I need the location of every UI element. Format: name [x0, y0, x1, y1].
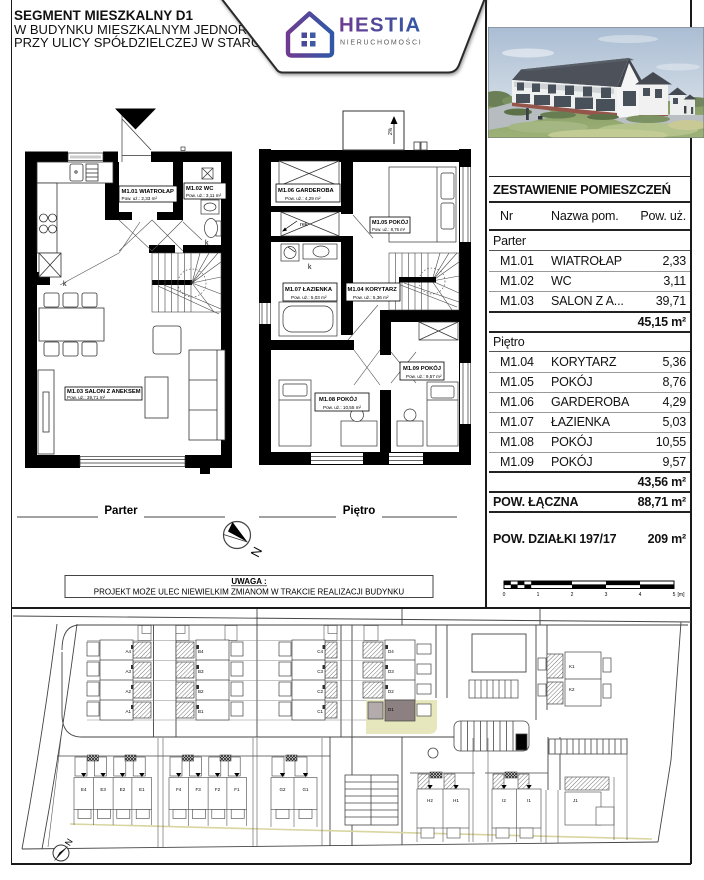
svg-text:Pow. uż.: 9,57 m²: Pow. uż.: 9,57 m²	[406, 374, 442, 379]
svg-text:D1: D1	[388, 707, 394, 712]
svg-text:E3: E3	[100, 787, 106, 792]
svg-text:B2: B2	[198, 689, 204, 694]
svg-text:1: 1	[537, 592, 540, 598]
svg-text:K1: K1	[569, 664, 575, 669]
svg-text:M1.05 POKÓJ: M1.05 POKÓJ	[372, 218, 408, 226]
svg-text:5: 5	[673, 592, 676, 598]
svg-text:C4: C4	[317, 649, 323, 654]
svg-text:Pow. uż.: 39,71 m²: Pow. uż.: 39,71 m²	[67, 395, 106, 400]
svg-text:A4: A4	[125, 649, 131, 654]
svg-text:Pow. uż.: 8,76 m²: Pow. uż.: 8,76 m²	[372, 227, 406, 232]
svg-text:k: k	[205, 240, 209, 247]
svg-text:Pow. uż.: 4,29 m²: Pow. uż.: 4,29 m²	[285, 196, 321, 201]
svg-text:Pow. uż.: 5,36 m²: Pow. uż.: 5,36 m²	[353, 295, 389, 300]
svg-text:A1: A1	[125, 709, 131, 714]
svg-text:A3: A3	[125, 669, 131, 674]
svg-text:B3: B3	[198, 669, 204, 674]
svg-text:E1: E1	[139, 787, 145, 792]
svg-text:F4: F4	[176, 787, 182, 792]
svg-text:F1: F1	[234, 787, 240, 792]
svg-text:[m]: [m]	[678, 592, 686, 598]
svg-text:G1: G1	[302, 787, 309, 792]
svg-text:C2: C2	[317, 689, 323, 694]
svg-text:M1.07 ŁAZIENKA: M1.07 ŁAZIENKA	[285, 287, 333, 293]
svg-text:0: 0	[503, 592, 506, 598]
svg-text:G2: G2	[279, 787, 286, 792]
svg-text:Pow. uż.: 5,03 m²: Pow. uż.: 5,03 m²	[291, 295, 327, 300]
svg-text:M1.01 WIATROŁAP: M1.01 WIATROŁAP	[122, 189, 175, 195]
svg-text:k: k	[308, 264, 312, 271]
svg-text:K2: K2	[569, 687, 575, 692]
svg-text:2: 2	[571, 592, 574, 598]
svg-text:I1: I1	[527, 798, 531, 803]
svg-text:F2: F2	[215, 787, 221, 792]
svg-text:A2: A2	[125, 689, 131, 694]
svg-text:D4: D4	[388, 649, 394, 654]
svg-text:rek: rek	[300, 222, 308, 228]
svg-text:2%: 2%	[388, 127, 394, 135]
svg-text:Pow. uż.: 2,33 m²: Pow. uż.: 2,33 m²	[122, 196, 158, 201]
svg-text:H1: H1	[453, 798, 459, 803]
svg-text:UWAGA :: UWAGA :	[231, 577, 266, 586]
svg-text:M1.04 KORYTARZ: M1.04 KORYTARZ	[348, 287, 398, 293]
svg-text:NIERUCHOMOŚCI: NIERUCHOMOŚCI	[340, 38, 422, 47]
svg-text:J1: J1	[573, 798, 578, 803]
svg-text:D3: D3	[388, 669, 394, 674]
svg-text:4: 4	[639, 592, 642, 598]
svg-text:Piętro: Piętro	[343, 505, 376, 517]
svg-text:N: N	[248, 544, 266, 559]
svg-text:M1.08 POKÓJ: M1.08 POKÓJ	[319, 395, 357, 403]
svg-text:HESTIA: HESTIA	[339, 14, 421, 37]
svg-text:M1.02 WC: M1.02 WC	[186, 186, 214, 192]
svg-text:M1.09 POKÓJ: M1.09 POKÓJ	[403, 364, 441, 372]
svg-text:H2: H2	[427, 798, 433, 803]
svg-text:D2: D2	[388, 689, 394, 694]
svg-text:C3: C3	[317, 669, 323, 674]
svg-text:I2: I2	[502, 798, 506, 803]
svg-text:3: 3	[605, 592, 608, 598]
svg-text:C1: C1	[317, 709, 323, 714]
svg-text:E2: E2	[120, 787, 126, 792]
svg-text:E4: E4	[81, 787, 87, 792]
svg-text:Pow. uż.: 10,55 m²: Pow. uż.: 10,55 m²	[323, 405, 362, 410]
svg-text:Pow. uż.: 3,11 m²: Pow. uż.: 3,11 m²	[186, 193, 222, 198]
svg-text:F3: F3	[195, 787, 201, 792]
svg-text:PROJEKT MOŻE ULEC NIEWIELKIM Z: PROJEKT MOŻE ULEC NIEWIELKIM ZMIANOM W T…	[94, 588, 405, 597]
svg-text:B1: B1	[198, 709, 204, 714]
svg-text:Parter: Parter	[104, 505, 138, 517]
svg-text:M1.06 GARDEROBA: M1.06 GARDEROBA	[278, 188, 335, 194]
svg-text:B4: B4	[198, 649, 204, 654]
